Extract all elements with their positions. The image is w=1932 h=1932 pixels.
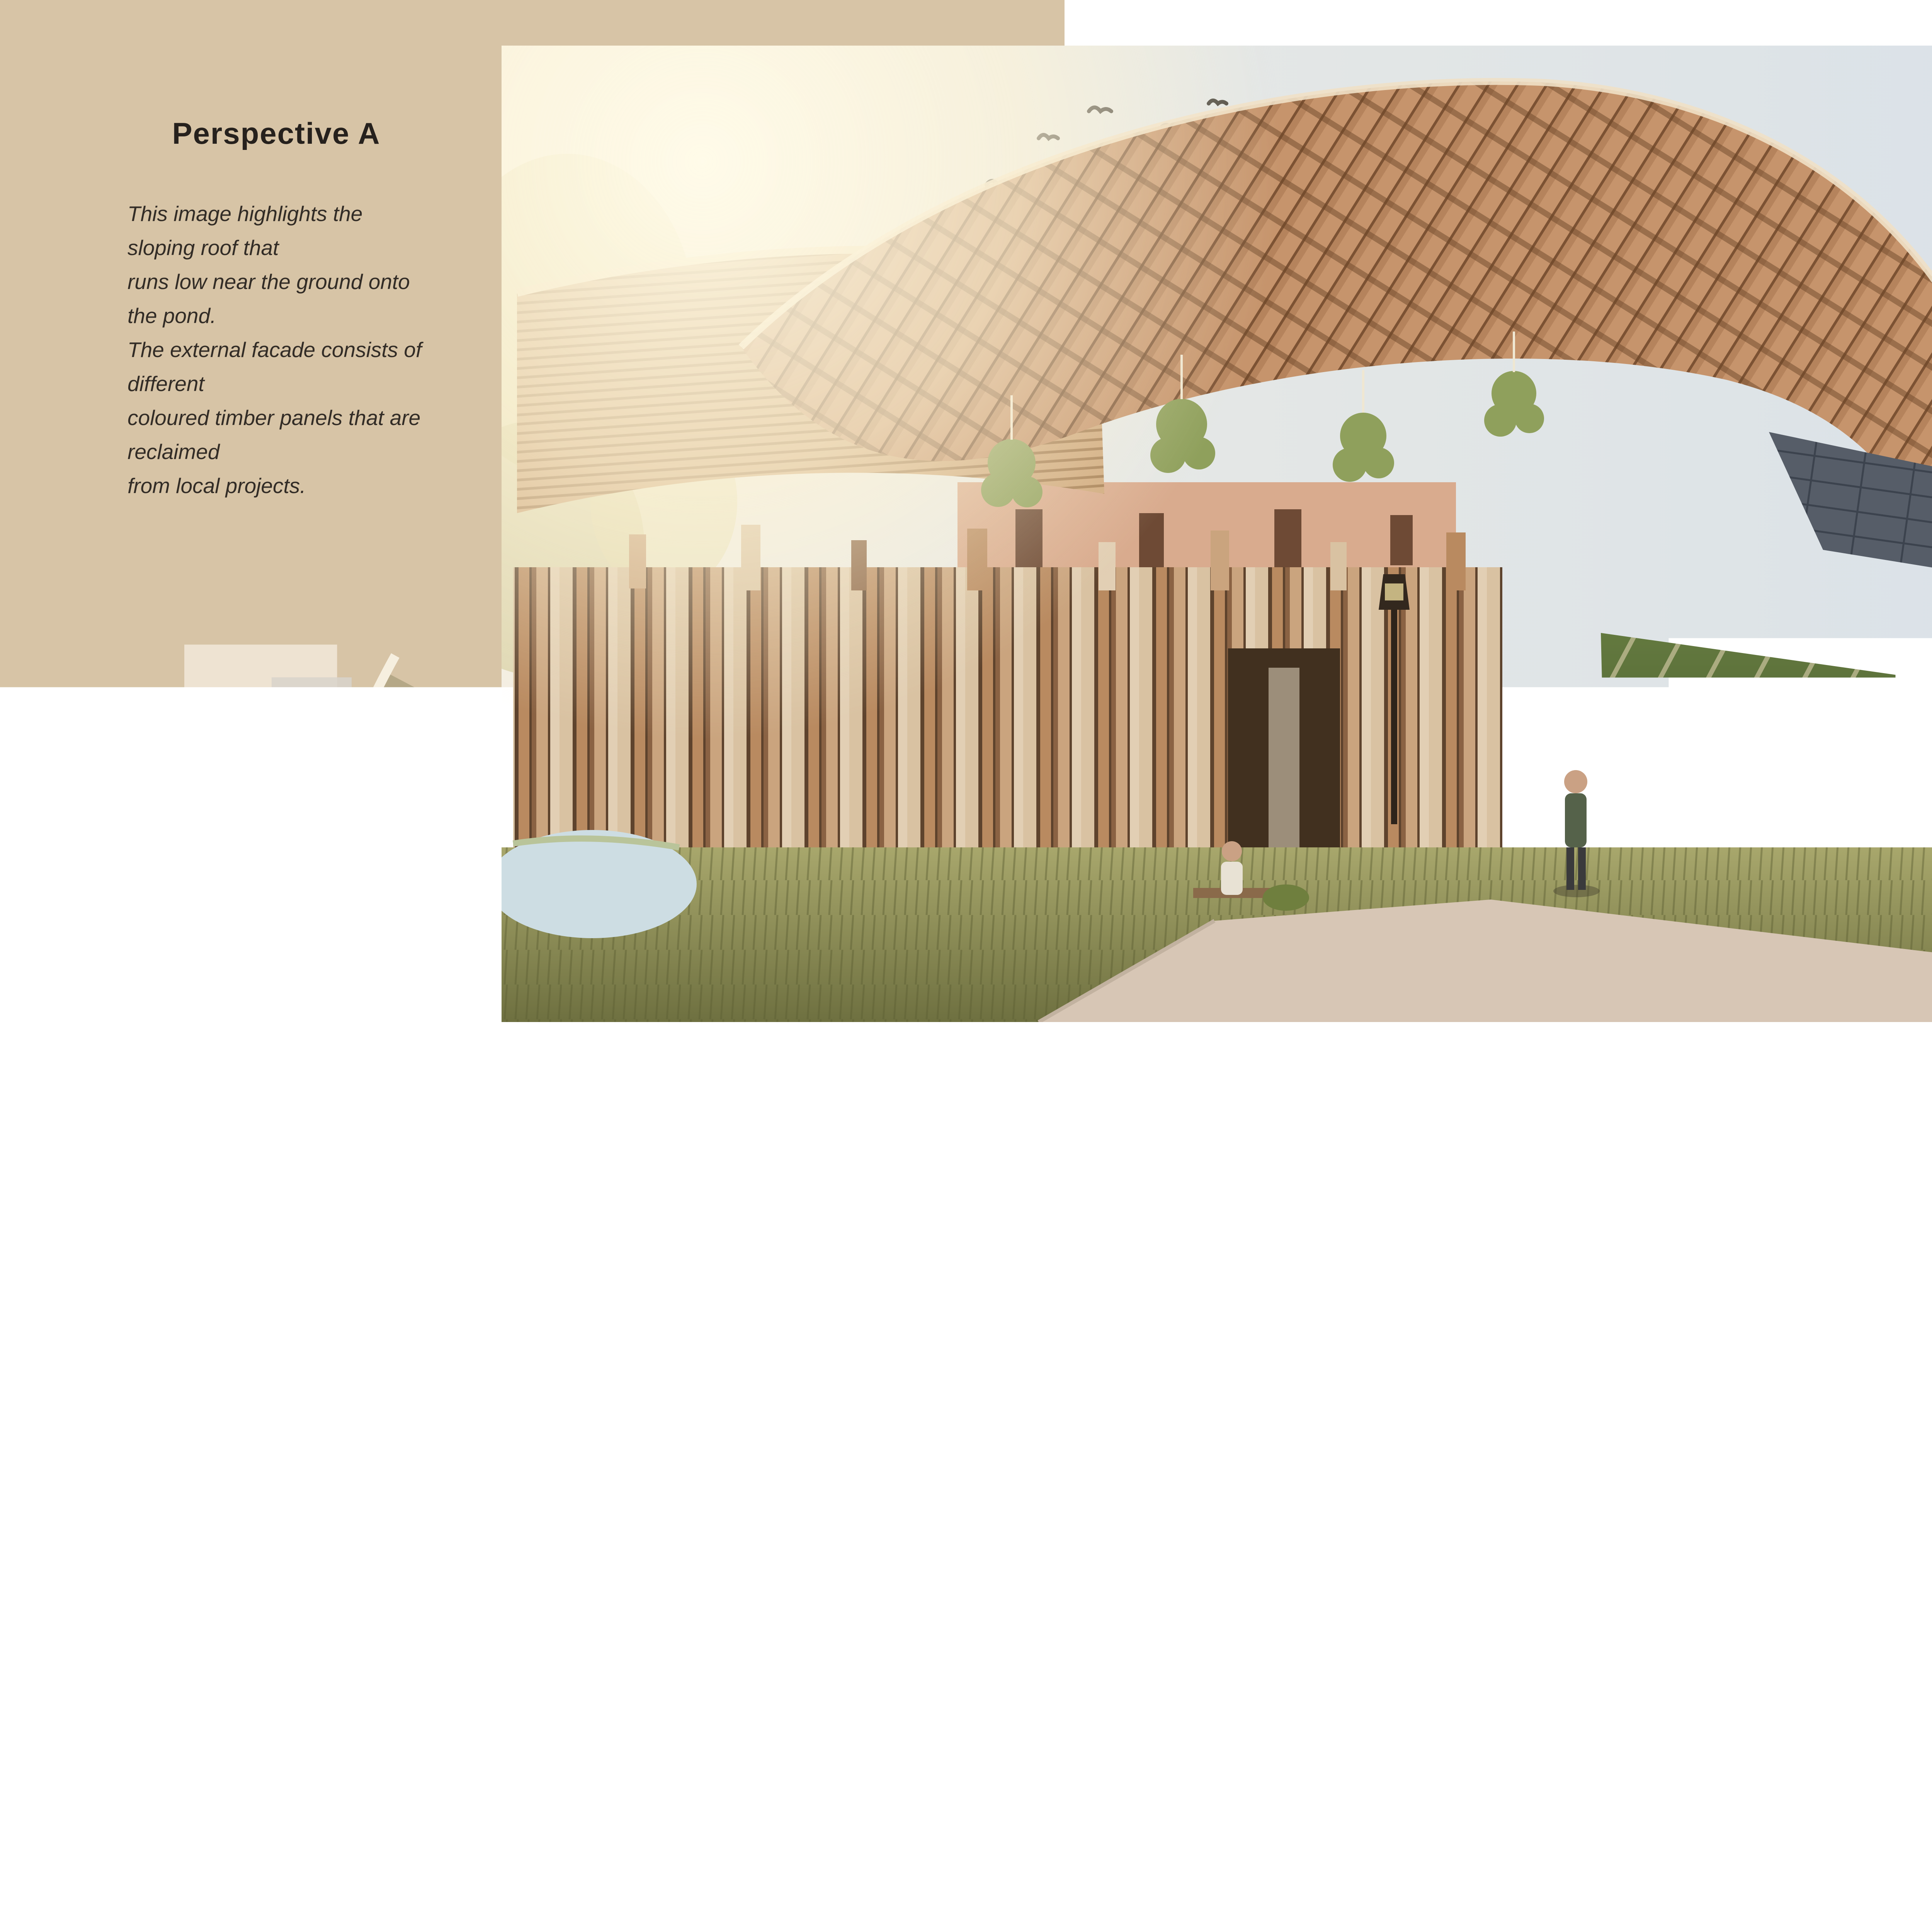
perspective-a-title: Perspective A (128, 116, 425, 151)
site-map-a: A (162, 634, 417, 932)
perspective-a-caption: This image highlights the sloping roof t… (128, 197, 425, 503)
perspective-b-render (47, 1053, 1770, 1932)
perspective-b-panel: Perspective B This image focuses on the … (1777, 1099, 1932, 1588)
site-map-b: B (1770, 1600, 1932, 1932)
perspective-a-panel: Perspective A This image highlights the … (128, 116, 425, 503)
paper-strip-left (0, 1022, 47, 1932)
perspective-b-caption: This image focuses on the overlapping ro… (1777, 1180, 1932, 1588)
perspective-b-title: Perspective B (1777, 1099, 1932, 1134)
presentation-board: Perspective A This image highlights the … (0, 0, 1932, 1932)
map-marker-a-letter: A (229, 804, 244, 828)
perspective-a-render (502, 46, 1932, 1022)
